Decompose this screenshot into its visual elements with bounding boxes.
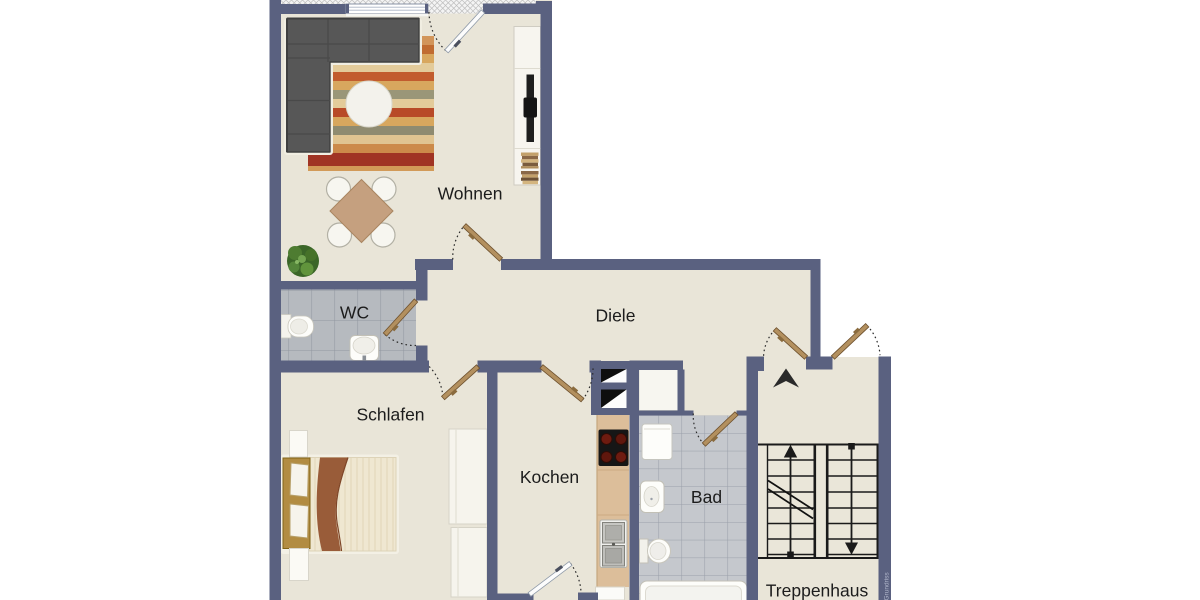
svg-text:Kochen: Kochen	[520, 467, 579, 487]
svg-text:Wohnen: Wohnen	[438, 184, 503, 204]
svg-text:Treppenhaus: Treppenhaus	[766, 581, 869, 600]
svg-text:Grundriss: Grundriss	[884, 572, 891, 600]
svg-text:Schlafen: Schlafen	[356, 405, 424, 425]
svg-text:WC: WC	[340, 303, 369, 323]
svg-text:Diele: Diele	[596, 306, 636, 326]
svg-text:Bad: Bad	[691, 487, 722, 507]
